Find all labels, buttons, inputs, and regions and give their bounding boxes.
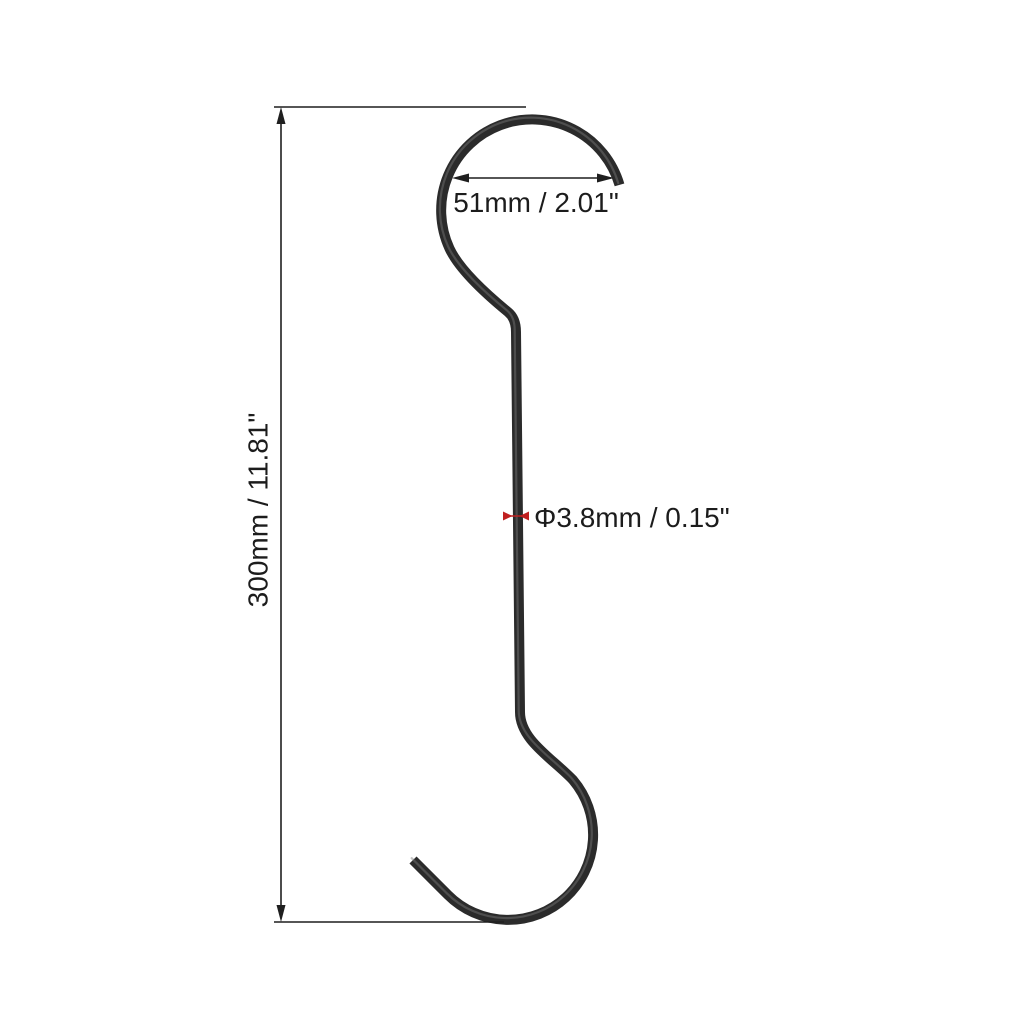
height-dimension: 300mm / 11.81" (243, 107, 527, 922)
arrow-down-icon (277, 905, 286, 922)
opening-width-dimension: 51mm / 2.01" (452, 174, 619, 219)
s-hook-diagram-canvas: 300mm / 11.81" 51mm / 2.01" Φ3.8mm / 0.1… (0, 0, 1024, 1024)
height-dimension-label: 300mm / 11.81" (243, 413, 274, 608)
diameter-marker-arrow-right-icon (503, 512, 513, 521)
wire-diameter-label: Φ3.8mm / 0.15" (534, 502, 730, 533)
arrow-up-icon (277, 107, 286, 124)
arrow-left-icon (452, 174, 469, 183)
wire-diameter-dimension: Φ3.8mm / 0.15" (503, 502, 730, 533)
product-dimension-diagram: 300mm / 11.81" 51mm / 2.01" Φ3.8mm / 0.1… (0, 0, 1024, 1024)
opening-width-label: 51mm / 2.01" (453, 187, 619, 218)
